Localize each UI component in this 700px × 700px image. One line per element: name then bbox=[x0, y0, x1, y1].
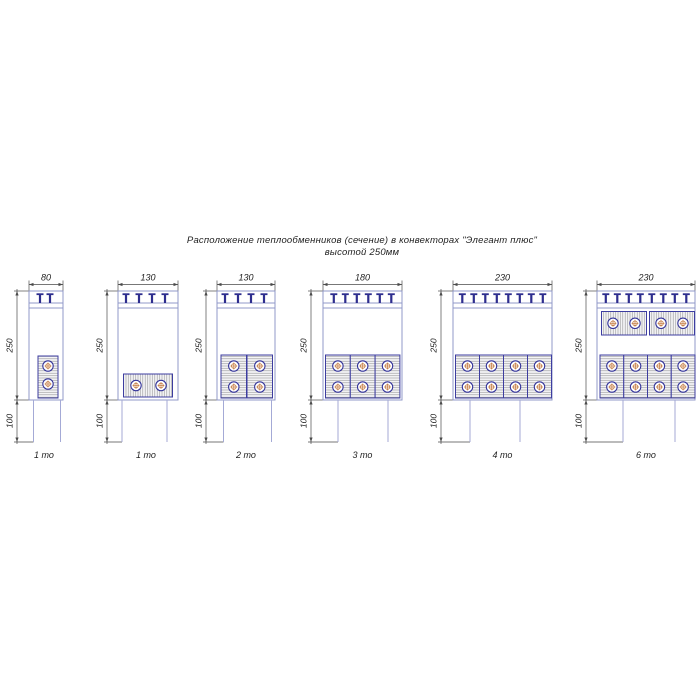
tee-stem bbox=[639, 295, 641, 303]
arrowhead-right bbox=[59, 283, 64, 286]
convector-230-6to: 2302501006 то bbox=[574, 273, 696, 461]
heat-exchanger-module bbox=[124, 374, 173, 397]
width-dimension-label: 130 bbox=[140, 273, 155, 283]
type-label: 3 то bbox=[353, 450, 373, 460]
tee-stem bbox=[628, 295, 630, 303]
tube bbox=[678, 382, 688, 392]
tee-stem bbox=[685, 295, 687, 303]
heat-exchanger-module bbox=[456, 355, 480, 398]
arrowhead-left bbox=[217, 283, 222, 286]
tee-stem bbox=[507, 295, 509, 303]
tube bbox=[333, 361, 343, 371]
width-dimension-label: 230 bbox=[637, 273, 653, 283]
tube bbox=[534, 361, 544, 371]
arrowhead-right bbox=[691, 283, 696, 286]
tee-stem bbox=[496, 295, 498, 303]
arrowhead-right bbox=[398, 283, 403, 286]
arrowhead-left bbox=[597, 283, 602, 286]
arrowhead-right bbox=[174, 283, 179, 286]
arrowhead-bottom bbox=[584, 438, 587, 443]
tube bbox=[510, 361, 520, 371]
tee-stem bbox=[356, 295, 358, 303]
tube bbox=[656, 318, 666, 328]
heat-exchanger-module bbox=[600, 355, 624, 398]
arrowhead-right bbox=[271, 283, 276, 286]
arrowhead-mid-up bbox=[15, 396, 18, 401]
height-100-label: 100 bbox=[95, 414, 105, 428]
tee-stem bbox=[484, 295, 486, 303]
tee-stem bbox=[263, 295, 265, 303]
heat-exchanger-module bbox=[326, 355, 351, 398]
heat-exchanger-module bbox=[624, 355, 648, 398]
arrowhead-left bbox=[323, 283, 328, 286]
tee-stem bbox=[662, 295, 664, 303]
heat-exchanger-module bbox=[650, 312, 695, 336]
height-250-label: 250 bbox=[194, 338, 204, 353]
height-250-label: 250 bbox=[574, 338, 584, 353]
heat-exchanger-module bbox=[648, 355, 672, 398]
tee-stem bbox=[250, 295, 252, 303]
arrowhead-top bbox=[309, 291, 312, 296]
tee-stem bbox=[473, 295, 475, 303]
tee-stem bbox=[164, 295, 166, 303]
tee-stem bbox=[605, 295, 607, 303]
type-label: 1 то bbox=[34, 450, 54, 460]
air-duct bbox=[470, 400, 520, 442]
width-dimension: 80 bbox=[29, 273, 63, 292]
tee-stem bbox=[390, 295, 392, 303]
width-dimension-label: 180 bbox=[355, 273, 370, 283]
arrowhead-mid-up bbox=[439, 396, 442, 401]
tube bbox=[630, 361, 640, 371]
heat-exchanger-module bbox=[671, 355, 695, 398]
tube bbox=[654, 382, 664, 392]
arrowhead-left bbox=[29, 283, 34, 286]
arrowhead-top bbox=[584, 291, 587, 296]
width-dimension: 180 bbox=[323, 273, 402, 292]
air-duct bbox=[224, 400, 272, 442]
tee-stem bbox=[519, 295, 521, 303]
tee-stem bbox=[151, 295, 153, 303]
tube bbox=[229, 382, 239, 392]
heat-exchanger-module bbox=[350, 355, 375, 398]
tee-stem bbox=[138, 295, 140, 303]
arrowhead-mid-down bbox=[584, 400, 587, 405]
width-dimension: 230 bbox=[453, 273, 552, 292]
tube bbox=[382, 382, 392, 392]
tee-stem bbox=[651, 295, 653, 303]
height-100-label: 100 bbox=[574, 414, 584, 428]
tee-stem bbox=[125, 295, 127, 303]
arrowhead-mid-up bbox=[105, 396, 108, 401]
height-100-label: 100 bbox=[194, 414, 204, 428]
tee-stem bbox=[674, 295, 676, 303]
tube bbox=[608, 318, 618, 328]
width-dimension: 130 bbox=[118, 273, 178, 292]
arrowhead-bottom bbox=[15, 438, 18, 443]
type-label: 1 то bbox=[136, 450, 156, 460]
heat-exchanger-module bbox=[375, 355, 400, 398]
arrowhead-left bbox=[453, 283, 458, 286]
width-dimension-label: 130 bbox=[238, 273, 253, 283]
tee-stem bbox=[49, 295, 51, 303]
tube bbox=[462, 361, 472, 371]
arrowhead-bottom bbox=[204, 438, 207, 443]
tee-stem bbox=[616, 295, 618, 303]
tube bbox=[462, 382, 472, 392]
tube bbox=[534, 382, 544, 392]
height-250-label: 250 bbox=[5, 338, 15, 353]
tube bbox=[333, 382, 343, 392]
tube bbox=[607, 382, 617, 392]
arrowhead-left bbox=[118, 283, 123, 286]
arrowhead-mid-down bbox=[204, 400, 207, 405]
heat-exchanger-module bbox=[221, 355, 247, 398]
air-duct bbox=[338, 400, 388, 442]
tube bbox=[358, 382, 368, 392]
arrowhead-top bbox=[439, 291, 442, 296]
tee-stem bbox=[39, 295, 41, 303]
tee-stem bbox=[344, 295, 346, 303]
height-250-label: 250 bbox=[299, 338, 309, 353]
height-100-label: 100 bbox=[429, 414, 439, 428]
tube bbox=[486, 382, 496, 392]
type-label: 4 то bbox=[493, 450, 513, 460]
tube bbox=[131, 380, 141, 390]
tube bbox=[630, 318, 640, 328]
tube bbox=[43, 361, 53, 371]
air-duct bbox=[122, 400, 167, 442]
type-label: 2 то bbox=[235, 450, 256, 460]
heat-exchanger-module bbox=[38, 356, 58, 398]
tube bbox=[43, 379, 53, 389]
arrowhead-mid-down bbox=[105, 400, 108, 405]
height-100-label: 100 bbox=[299, 414, 309, 428]
tube bbox=[486, 361, 496, 371]
width-dimension: 230 bbox=[597, 273, 695, 292]
arrowhead-mid-up bbox=[309, 396, 312, 401]
tube bbox=[654, 361, 664, 371]
tube bbox=[156, 380, 166, 390]
convector-130-1to: 1302501001 то bbox=[95, 273, 179, 461]
width-dimension: 130 bbox=[217, 273, 275, 292]
tee-stem bbox=[333, 295, 335, 303]
air-duct bbox=[34, 400, 61, 442]
technical-drawing: 802501001 то1302501001 то1302501002 то18… bbox=[0, 0, 700, 700]
tee-stem bbox=[542, 295, 544, 303]
tube bbox=[229, 361, 239, 371]
width-dimension-label: 80 bbox=[41, 273, 51, 283]
arrowhead-bottom bbox=[309, 438, 312, 443]
height-250-label: 250 bbox=[95, 338, 105, 353]
arrowhead-right bbox=[548, 283, 553, 286]
arrowhead-bottom bbox=[105, 438, 108, 443]
heat-exchanger-module bbox=[602, 312, 647, 336]
tee-stem bbox=[379, 295, 381, 303]
tube bbox=[510, 382, 520, 392]
height-250-label: 250 bbox=[429, 338, 439, 353]
heat-exchanger-module bbox=[480, 355, 504, 398]
arrowhead-top bbox=[15, 291, 18, 296]
tube bbox=[382, 361, 392, 371]
arrowhead-mid-down bbox=[439, 400, 442, 405]
arrowhead-top bbox=[204, 291, 207, 296]
convector-180-3to: 1802501003 то bbox=[299, 273, 403, 461]
convector-130-2to: 1302501002 то bbox=[194, 273, 276, 461]
heat-exchanger-module bbox=[504, 355, 528, 398]
tee-stem bbox=[530, 295, 532, 303]
height-100-label: 100 bbox=[5, 414, 15, 428]
heat-exchanger-module bbox=[528, 355, 552, 398]
tube bbox=[255, 382, 265, 392]
arrowhead-top bbox=[105, 291, 108, 296]
tee-stem bbox=[461, 295, 463, 303]
convector-80-1to: 802501001 то bbox=[5, 273, 64, 461]
tee-stem bbox=[237, 295, 239, 303]
tee-stem bbox=[367, 295, 369, 303]
tee-stem bbox=[224, 295, 226, 303]
tube bbox=[678, 361, 688, 371]
tube bbox=[255, 361, 265, 371]
arrowhead-mid-up bbox=[204, 396, 207, 401]
tube bbox=[630, 382, 640, 392]
arrowhead-mid-down bbox=[15, 400, 18, 405]
arrowhead-mid-down bbox=[309, 400, 312, 405]
width-dimension-label: 230 bbox=[494, 273, 510, 283]
tube bbox=[358, 361, 368, 371]
tube bbox=[678, 318, 688, 328]
arrowhead-mid-up bbox=[584, 396, 587, 401]
tube bbox=[607, 361, 617, 371]
air-duct bbox=[623, 400, 675, 442]
type-label: 6 то bbox=[636, 450, 656, 460]
convector-230-4to: 2302501004 то bbox=[429, 273, 553, 461]
arrowhead-bottom bbox=[439, 438, 442, 443]
heat-exchanger-module bbox=[247, 355, 273, 398]
drawing-page: Расположение теплообменников (сечение) в… bbox=[0, 0, 700, 700]
